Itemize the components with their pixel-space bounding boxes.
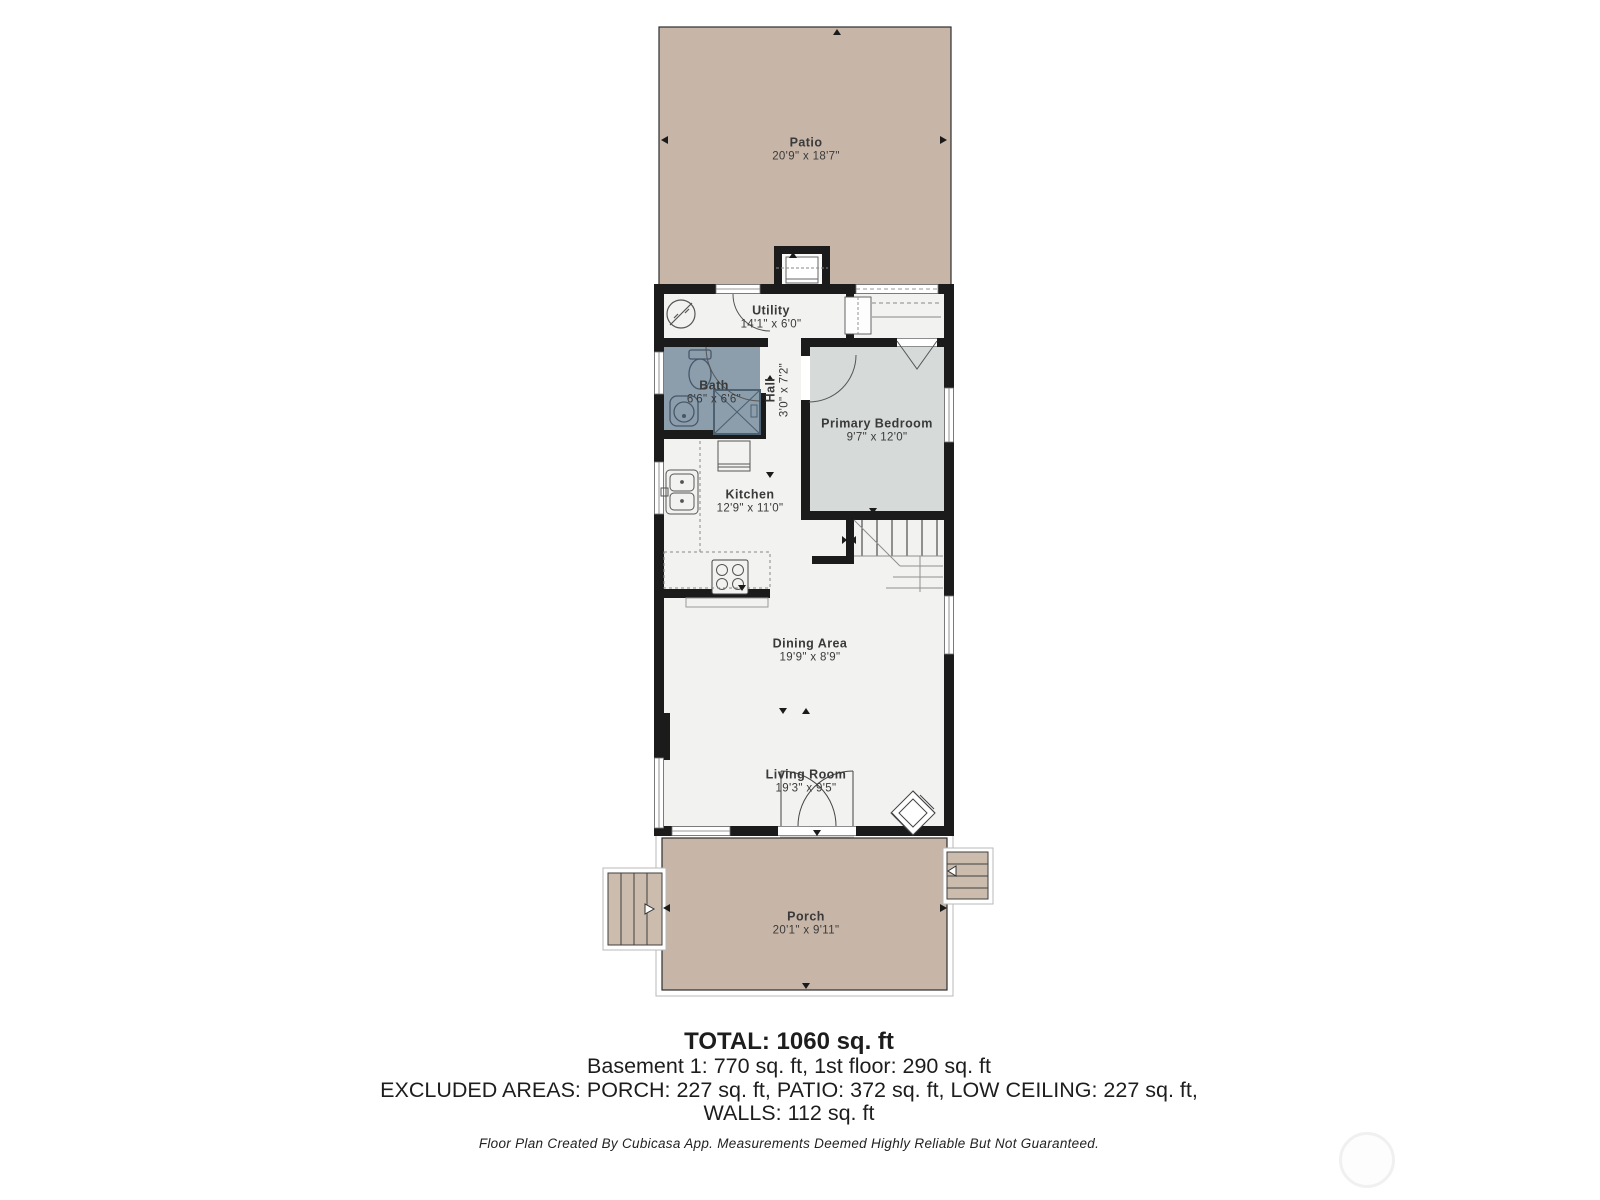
room-label-porch: Porch 20'1" x 9'11" [773,910,840,937]
floor-areas: Basement 1: 770 sq. ft, 1st floor: 290 s… [0,1055,1578,1079]
room-name: Living Room [766,768,847,782]
floor-plan-canvas [0,0,1600,1200]
room-label-dining-area: Dining Area 19'9" x 8'9" [773,637,848,664]
excluded-areas-line2: WALLS: 112 sq. ft [0,1102,1578,1126]
room-name: Utility [741,304,802,318]
porch-stairs-right [943,848,993,904]
room-dims: 3'0" x 7'2" [779,363,791,417]
room-name: Hall [764,363,778,417]
room-dims: 9'7" x 12'0" [821,432,933,444]
room-name: Bath [687,379,741,393]
room-name: Primary Bedroom [821,417,933,431]
excluded-areas-line1: EXCLUDED AREAS: PORCH: 227 sq. ft, PATIO… [0,1079,1578,1103]
room-label-utility: Utility 14'1" x 6'0" [741,304,802,331]
area-summary: TOTAL: 1060 sq. ft Basement 1: 770 sq. f… [0,1028,1578,1126]
room-label-patio: Patio 20'9" x 18'7" [772,136,840,163]
room-label-primary-bedroom: Primary Bedroom 9'7" x 12'0" [821,417,933,444]
disclaimer-text: Floor Plan Created By Cubicasa App. Meas… [0,1136,1578,1151]
room-name: Patio [772,136,840,150]
total-area: TOTAL: 1060 sq. ft [0,1028,1578,1055]
room-dims: 12'9" x 11'0" [717,503,784,515]
room-dims: 19'3" x 9'5" [766,783,847,795]
room-dims: 14'1" x 6'0" [741,319,802,331]
porch-stairs-left [603,868,666,950]
room-name: Kitchen [717,488,784,502]
room-label-bath: Bath 6'6" x 6'6" [687,379,741,406]
room-dims: 20'1" x 9'11" [773,925,840,937]
room-name: Porch [773,910,840,924]
room-label-hall: Hall 3'0" x 7'2" [764,363,791,417]
room-dims: 20'9" x 18'7" [772,151,840,163]
floor-plan-page: Patio 20'9" x 18'7" Utility 14'1" x 6'0"… [0,0,1600,1200]
room-name: Dining Area [773,637,848,651]
room-dims: 19'9" x 8'9" [773,652,848,664]
room-label-living-room: Living Room 19'3" x 9'5" [766,768,847,795]
room-dims: 6'6" x 6'6" [687,394,741,406]
room-label-kitchen: Kitchen 12'9" x 11'0" [717,488,784,515]
